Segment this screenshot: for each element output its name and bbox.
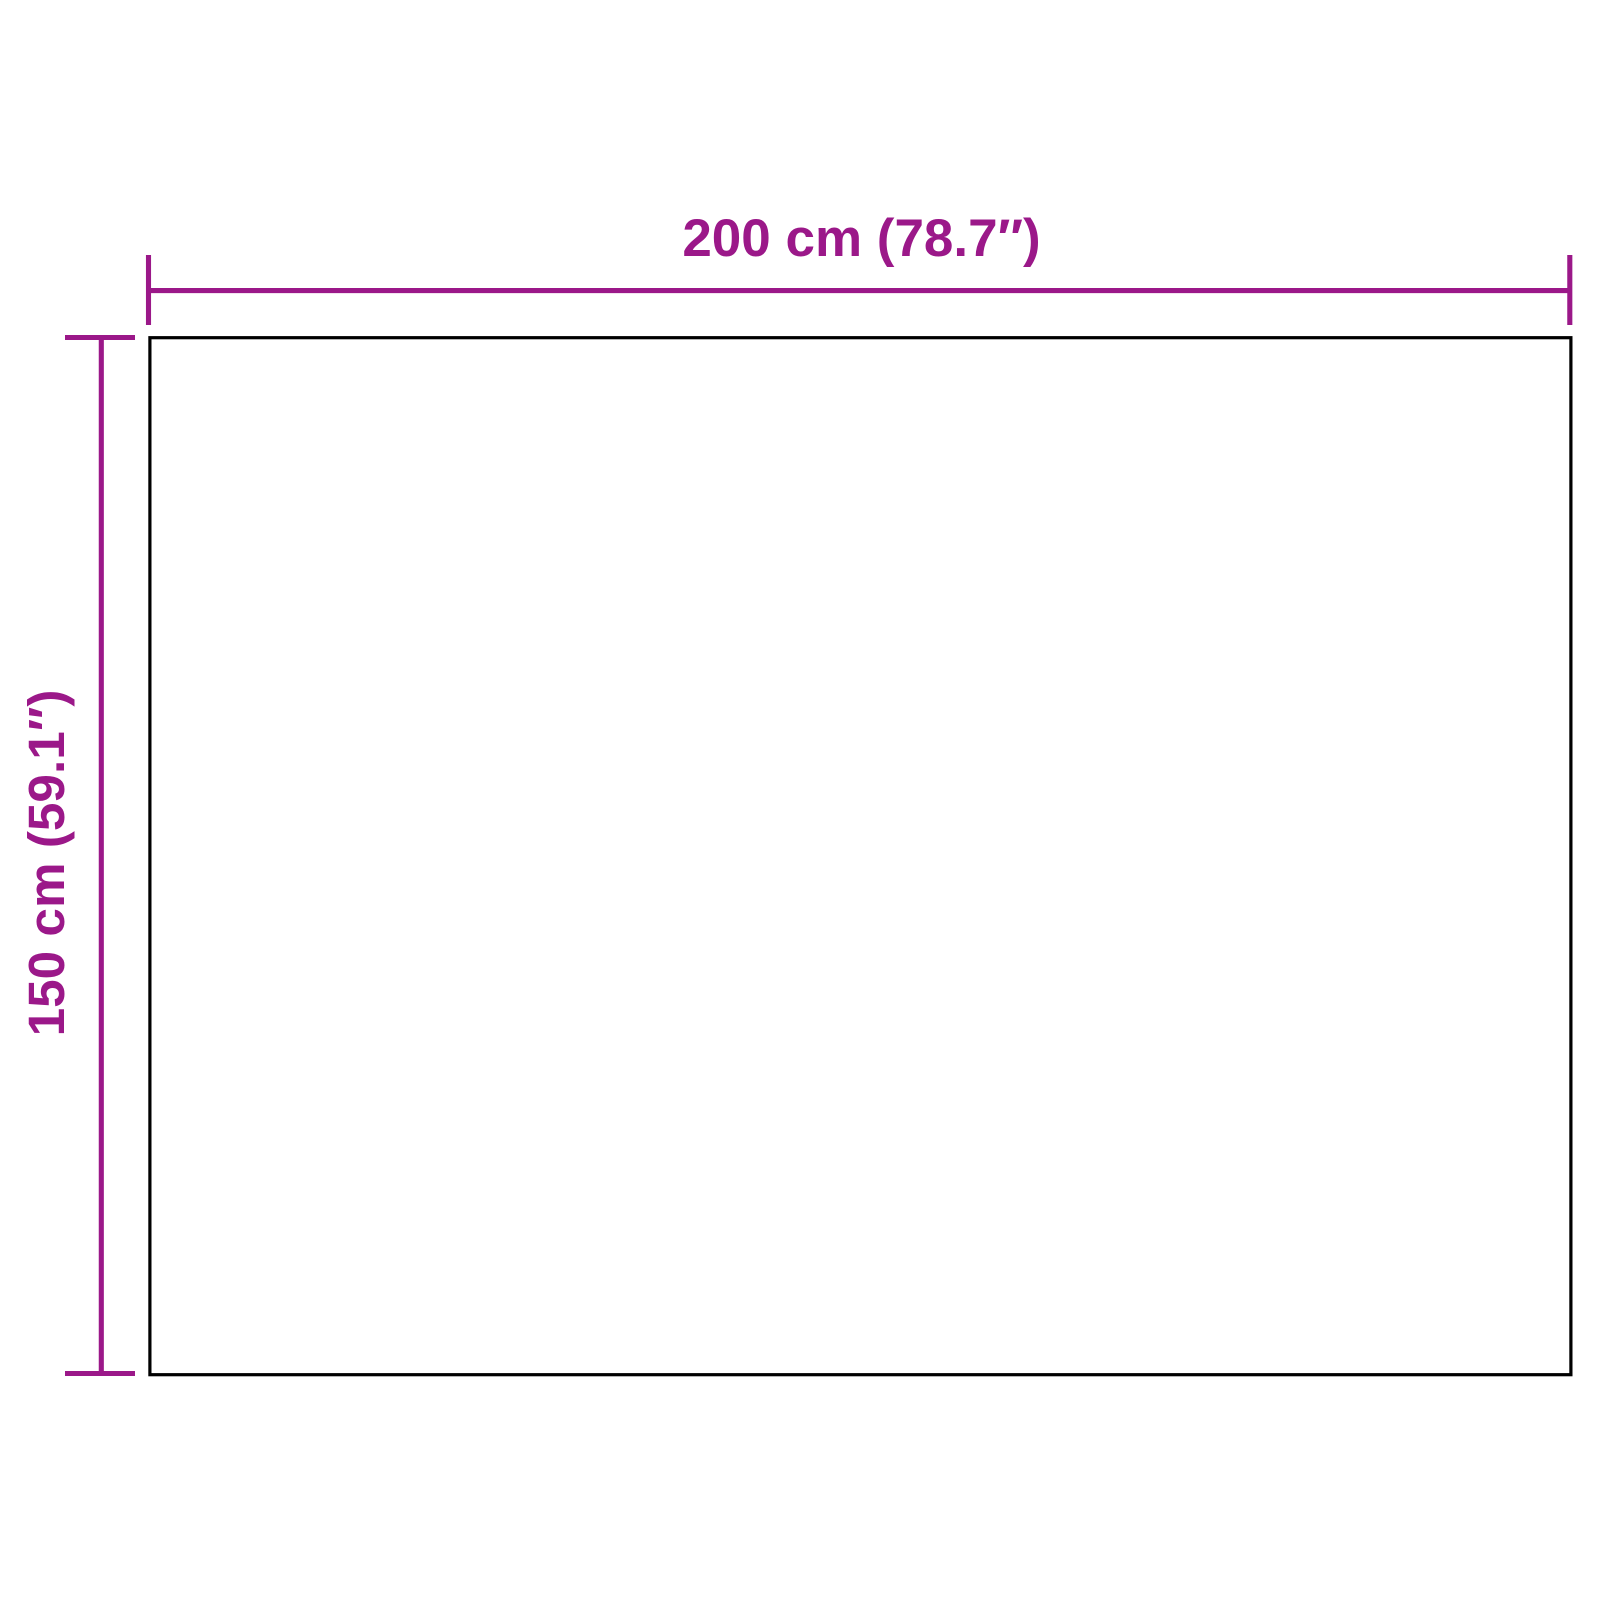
svg-text:200 cm (78.7″): 200 cm (78.7″): [682, 209, 1040, 268]
svg-text:150 cm (59.1″): 150 cm (59.1″): [18, 690, 75, 1037]
